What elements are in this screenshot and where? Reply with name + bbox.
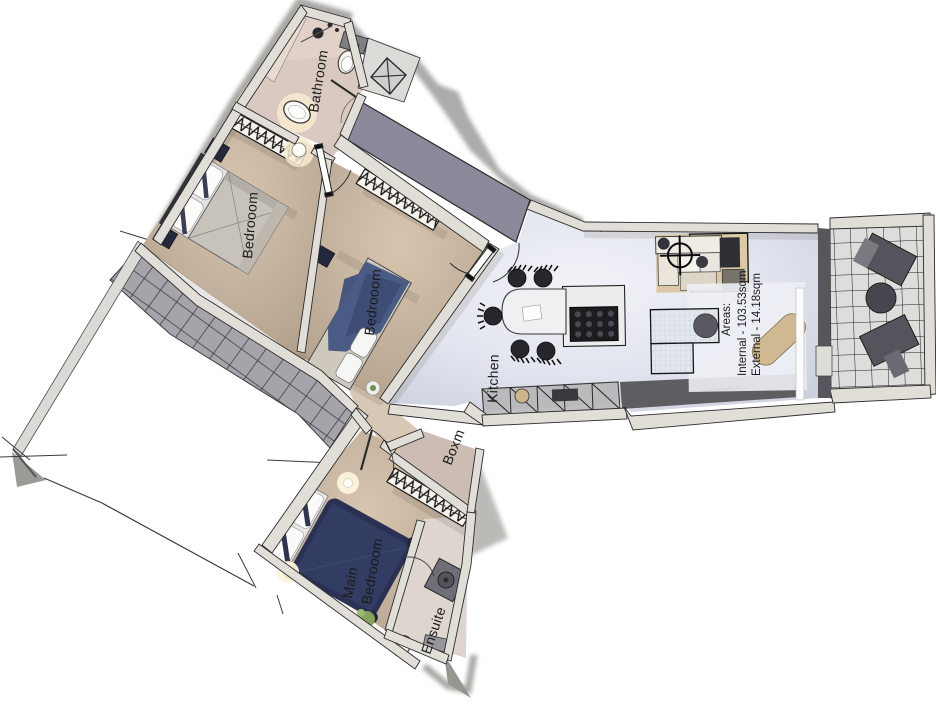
svg-text:External - 14.18sqm: External - 14.18sqm xyxy=(751,273,763,376)
svg-text:Areas:: Areas: xyxy=(721,303,733,336)
svg-text:Internal - 103.53sqm: Internal - 103.53sqm xyxy=(737,271,749,376)
svg-text:Kitchen: Kitchen xyxy=(484,354,502,403)
